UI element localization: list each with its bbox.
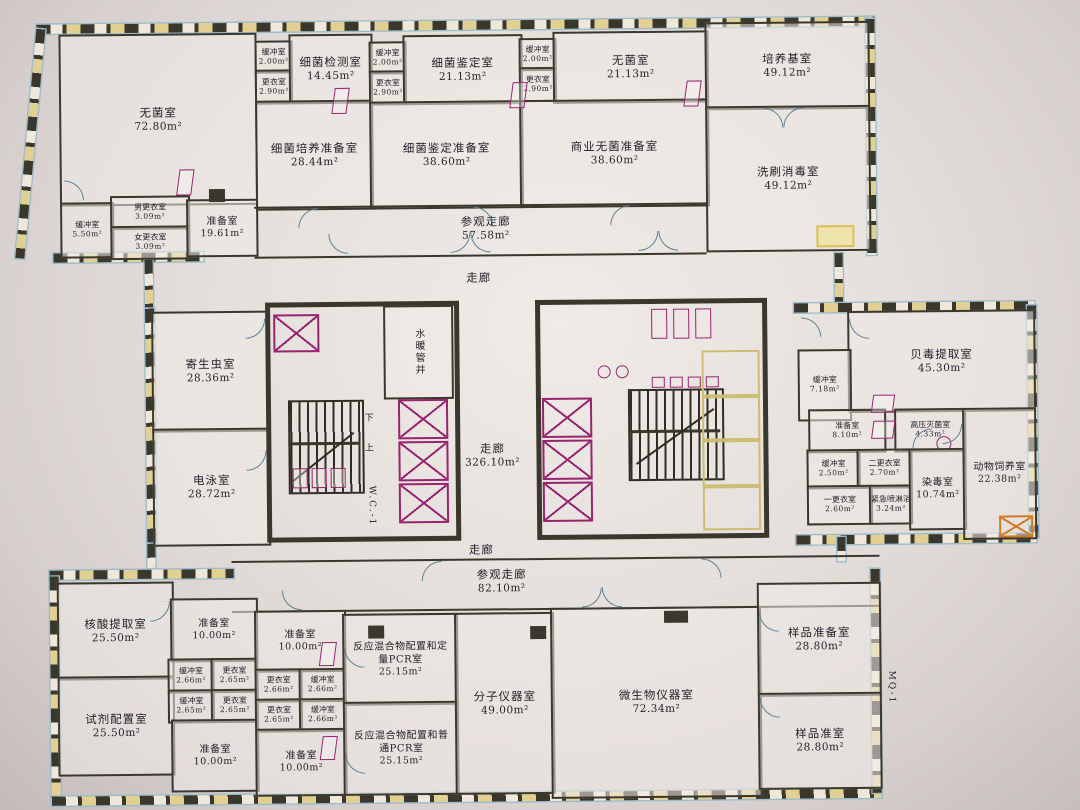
- cage-icon: [999, 515, 1033, 537]
- room-name: 动物饲养室: [973, 461, 1026, 475]
- room-area: 72.34m²: [632, 703, 680, 717]
- room-name: 准备室: [206, 215, 238, 228]
- wc-label: W.C.-1: [363, 480, 379, 532]
- corridor-name: 走廊: [480, 441, 505, 456]
- room-name: 分子仪器室: [473, 689, 536, 705]
- corridor-area: 82.10m²: [478, 582, 526, 596]
- light-partition-room: [702, 394, 760, 443]
- corridor-area: 326.10m²: [465, 456, 520, 470]
- room-bacteria-culture-prep: 细菌培养准备室28.44m²: [255, 100, 374, 211]
- light-partition-room: [703, 484, 761, 531]
- corridor-name: 走廊: [469, 542, 494, 557]
- room-name: 试剂配置室: [85, 711, 148, 727]
- room-name: 样品准室: [795, 726, 845, 741]
- room-name: 寄生虫室: [186, 357, 236, 372]
- room-area: 10.00m²: [192, 630, 236, 643]
- corridor-top-label: 走廊: [451, 268, 507, 287]
- room-name: 准备室: [199, 743, 231, 756]
- floor-plan-photo: 无菌室72.80m² 缓冲室2.00m² 更衣室2.90m² 细菌检测室14.4…: [0, 0, 1080, 810]
- room-name: 准备室: [284, 628, 316, 641]
- up-label: 上: [365, 444, 374, 456]
- room-area: 10.74m²: [916, 489, 960, 502]
- room-commercial-sterile-prep: 商业无菌准备室38.60m²: [519, 98, 710, 208]
- ref-text: MQ-1: [885, 671, 897, 705]
- room-area: 49.12m²: [764, 179, 812, 193]
- room-name: 商业无菌准备室: [571, 139, 659, 155]
- door-arc: [801, 317, 821, 337]
- room-reagent: 试剂配置室25.50m²: [58, 676, 176, 777]
- room-buffer-250: 缓冲室2.50m²: [806, 449, 860, 490]
- sink-icon: [598, 365, 611, 378]
- room-area: 3.09m²: [135, 213, 165, 222]
- room-name: 样品准备室: [788, 625, 851, 641]
- room-area: 21.13m²: [607, 68, 655, 82]
- toilet-stall-icon: [312, 468, 327, 488]
- room-area: 2.00m²: [259, 57, 289, 66]
- room-prep-tl: 准备室10.00m²: [170, 598, 259, 663]
- elevator-icon: [398, 441, 448, 481]
- room-area: 5.50m²: [72, 230, 102, 239]
- elevator-icon: [273, 314, 319, 352]
- room-area: 21.13m²: [439, 70, 487, 84]
- room-name: 无菌室: [139, 105, 177, 120]
- toilet-stall-icon: [695, 308, 711, 338]
- pass-box-icon: [871, 421, 895, 439]
- corridor-name: 走廊: [466, 270, 491, 285]
- room-area: 2.65m²: [220, 706, 250, 715]
- stair-down-label: 下: [362, 414, 376, 426]
- room-area: 19.61m²: [201, 228, 245, 241]
- room-area: 3.09m²: [136, 243, 166, 252]
- room-area: 28.80m²: [795, 640, 843, 654]
- room-name: 细菌检测室: [299, 54, 362, 70]
- room-area: 2.00m²: [523, 55, 553, 64]
- room-area: 2.90m²: [373, 88, 403, 97]
- corridor-name: 参观走廊: [477, 567, 527, 582]
- room-sterile-main: 无菌室72.80m²: [58, 33, 258, 207]
- room-name: 细菌鉴定准备室: [403, 140, 491, 156]
- room-locker-second: 二更衣室2.70m²: [856, 448, 912, 489]
- room-locker-first: 一更衣室2.60m²: [807, 485, 873, 526]
- room-area: 7.18m²: [810, 385, 840, 394]
- elevator-icon: [542, 398, 592, 438]
- room-area: 2.66m²: [308, 715, 338, 724]
- urinal-icon: [688, 376, 701, 387]
- room-name: 贝毒提取室: [910, 347, 973, 363]
- room-area: 2.65m²: [220, 676, 250, 685]
- room-area: 2.70m²: [870, 469, 900, 478]
- room-locker-women: 女更衣室3.09m²: [110, 225, 190, 260]
- room-area: 2.50m²: [819, 469, 849, 478]
- pass-box-icon: [319, 642, 337, 666]
- elevator-icon: [398, 399, 448, 439]
- exterior-wall: [835, 253, 843, 305]
- elevator-icon: [542, 439, 592, 479]
- room-area: 25.15m²: [379, 666, 423, 679]
- room-name: 无菌室: [612, 53, 650, 68]
- room-name: 准备室: [198, 617, 230, 630]
- room-sample-prep: 样品准备室28.80m²: [757, 582, 882, 697]
- toilet-stall-icon: [331, 468, 346, 488]
- room-area: 8.10m²: [832, 431, 862, 440]
- room-prep-bl: 准备室10.00m²: [171, 719, 260, 793]
- down-label: 下: [365, 414, 374, 426]
- room-area: 2.65m²: [264, 716, 294, 725]
- room-area: 49.00m²: [481, 704, 529, 718]
- room-area: 49.12m²: [763, 66, 811, 80]
- elevator-icon: [543, 481, 593, 521]
- room-area: 28.36m²: [187, 372, 235, 386]
- room-area: 10.00m²: [278, 641, 322, 654]
- toilet-stall-icon: [651, 309, 667, 339]
- urinal-icon: [670, 377, 683, 388]
- room-name: 细菌培养准备室: [271, 140, 359, 156]
- pass-box-icon: [871, 395, 895, 413]
- wc-text: W.C.-1: [365, 485, 377, 526]
- room-area: 2.65m²: [176, 706, 206, 715]
- room-electrophoresis: 电泳室28.72m²: [152, 428, 271, 547]
- room-area: 22.38m²: [978, 474, 1022, 487]
- room-area: 14.45m²: [307, 69, 355, 83]
- room-buffer-4: 缓冲室5.50m²: [60, 202, 115, 259]
- toilet-stall-icon: [673, 309, 689, 339]
- room-name: 核酸提取室: [84, 616, 147, 632]
- room-area: 38.60m²: [591, 154, 639, 168]
- room-area: 10.00m²: [280, 762, 324, 775]
- room-area: 3.24m²: [876, 505, 906, 514]
- exterior-wall: [50, 569, 234, 580]
- door-sill: [368, 626, 384, 639]
- pipe-shaft-label: 水暖管井: [412, 328, 425, 376]
- room-culture-medium: 培养基室49.12m²: [704, 21, 870, 111]
- room-area: 2.90m²: [259, 87, 289, 96]
- room-name: 反应混合物配置和普通PCR室: [345, 729, 457, 756]
- door-sill: [530, 626, 546, 639]
- room-name: 准备室: [286, 749, 318, 762]
- room-pcr-normal: 反应混合物配置和普通PCR室25.15m²: [343, 701, 460, 796]
- room-area: 2.60m²: [825, 505, 855, 514]
- room-area: 2.66m²: [176, 676, 206, 685]
- room-bacteria-test: 细菌检测室14.45m²: [288, 34, 373, 105]
- toilet-stall-icon: [293, 468, 308, 488]
- room-area: 2.66m²: [264, 686, 294, 695]
- room-area: 38.60m²: [423, 155, 471, 169]
- floor-plan: 无菌室72.80m² 缓冲室2.00m² 更衣室2.90m² 细菌检测室14.4…: [0, 0, 1080, 810]
- room-area: 72.80m²: [134, 120, 182, 134]
- room-toxin: 染毒室10.74m²: [908, 448, 967, 531]
- equipment-box: [816, 225, 854, 247]
- room-area: 28.44m²: [291, 156, 339, 170]
- room-prep-1961: 准备室19.61m²: [186, 199, 259, 258]
- drawing-ref-label: MQ-1: [882, 663, 898, 713]
- room-name: 电泳室: [193, 473, 231, 488]
- pipe-shaft: 水暖管井: [383, 305, 454, 400]
- room-area: 2.00m²: [373, 58, 403, 67]
- elevator-icon: [399, 483, 449, 523]
- room-area: 28.80m²: [796, 741, 844, 755]
- room-area: 25.50m²: [93, 726, 141, 740]
- stair-up-label: 上: [362, 444, 376, 456]
- room-name: 微生物仪器室: [619, 688, 694, 704]
- room-nucleic-acid: 核酸提取室25.50m²: [57, 582, 175, 681]
- room-name: 细菌鉴定室: [431, 55, 494, 71]
- room-bacteria-id: 细菌鉴定室21.13m²: [402, 34, 523, 105]
- room-emergency-shower: 紧急喷淋浴3.24m²: [869, 484, 913, 524]
- room-area: 10.00m²: [194, 756, 238, 769]
- room-name: 染毒室: [922, 476, 954, 489]
- exterior-wall: [15, 29, 45, 259]
- room-area: 2.66m²: [308, 685, 338, 694]
- room-area: 25.50m²: [92, 631, 140, 645]
- corridor-bottom-label: 走廊: [453, 541, 509, 558]
- light-partition-room: [702, 438, 760, 489]
- pass-box-icon: [320, 736, 338, 760]
- room-area: 45.30m²: [918, 362, 966, 376]
- room-microbio: 微生物仪器室72.34m²: [550, 606, 763, 799]
- room-name: 洗刷消毒室: [757, 164, 820, 180]
- room-area: 28.72m²: [188, 488, 236, 502]
- room-molecular: 分子仪器室49.00m²: [454, 612, 556, 795]
- sink-icon: [616, 365, 629, 378]
- room-area: 25.15m²: [380, 755, 424, 768]
- room-area: 2.90m²: [523, 85, 553, 94]
- light-partition-room: [701, 350, 759, 399]
- door-sill: [209, 189, 225, 202]
- urinal-icon: [652, 377, 665, 388]
- corridor-main-label: 走廊326.10m²: [448, 436, 536, 475]
- view-corridor-bottom-label: 参观走廊82.10m²: [433, 560, 569, 603]
- exterior-wall: [145, 260, 153, 310]
- exterior-wall: [147, 544, 155, 568]
- door-sill: [664, 611, 688, 623]
- room-bacteria-id-prep: 细菌鉴定准备室38.60m²: [369, 100, 524, 209]
- room-name: 培养基室: [762, 51, 812, 66]
